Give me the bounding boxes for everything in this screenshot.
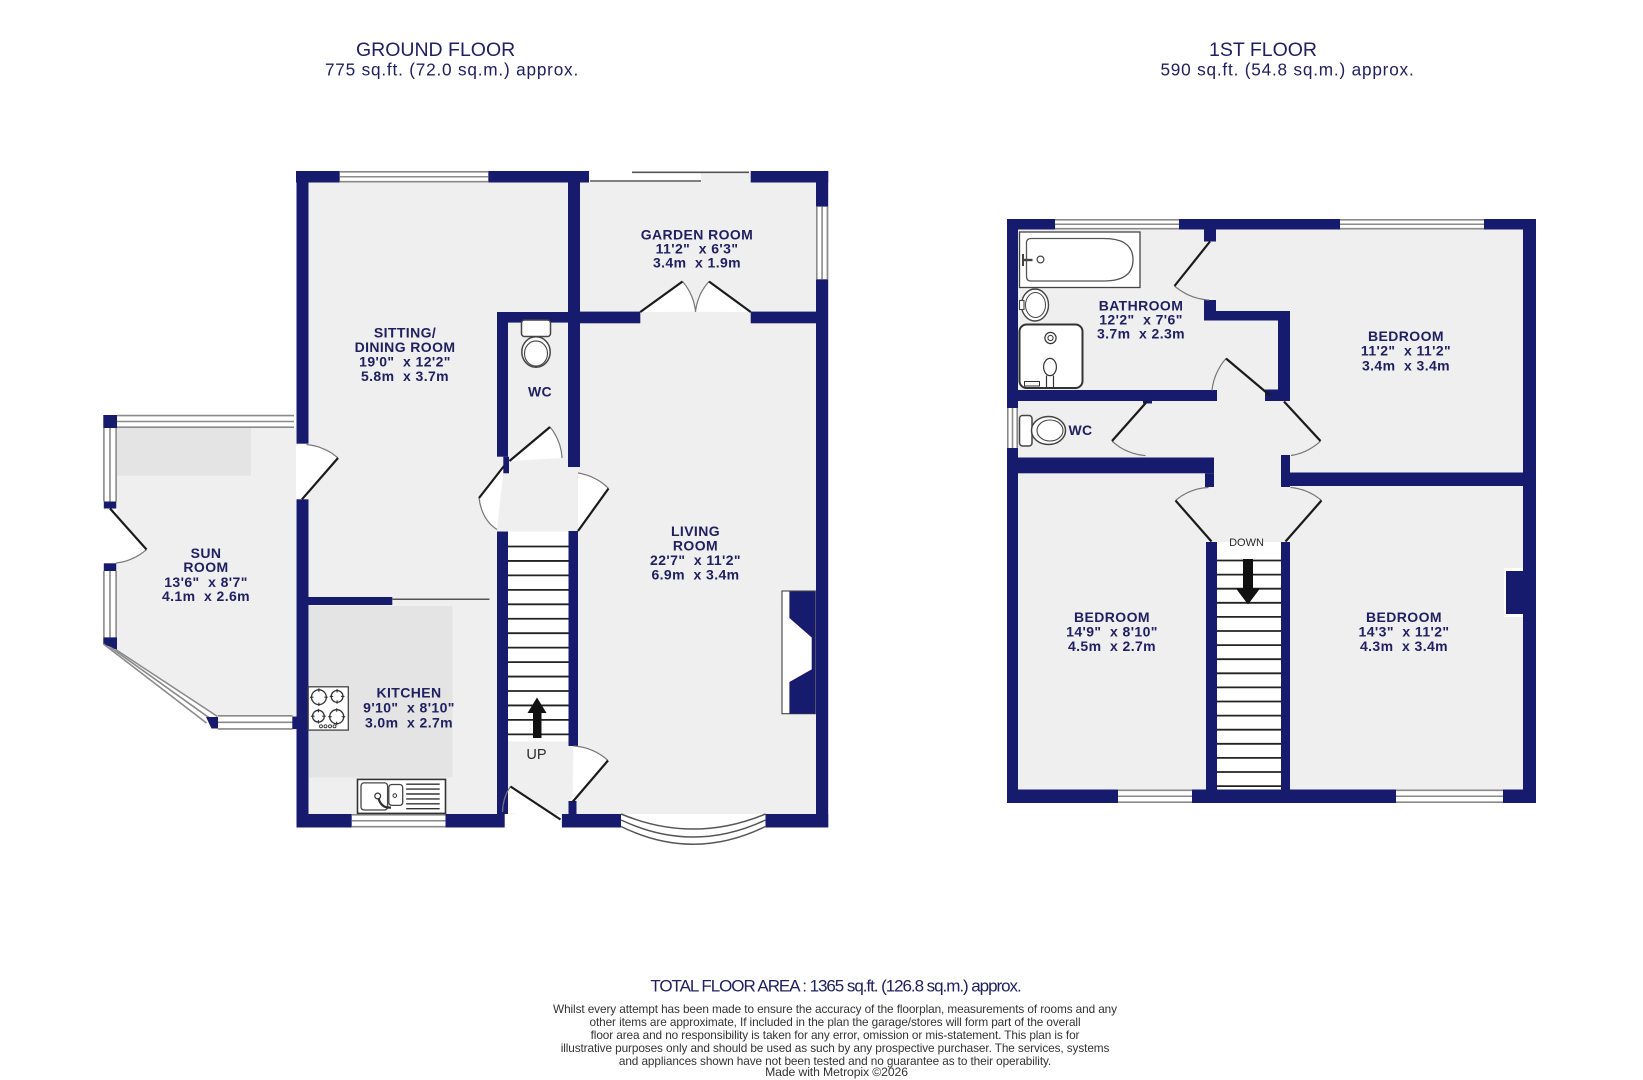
svg-text:KITCHEN: KITCHEN: [376, 685, 441, 701]
svg-text:WC: WC: [528, 384, 552, 400]
svg-text:DOWN: DOWN: [1229, 537, 1264, 549]
svg-text:775 sq.ft. (72.0 sq.m.) approx: 775 sq.ft. (72.0 sq.m.) approx.: [325, 60, 579, 80]
svg-text:9'10" x 8'10": 9'10" x 8'10": [363, 700, 455, 716]
svg-text:3.4m x 3.4m: 3.4m x 3.4m: [1362, 358, 1450, 374]
svg-text:Whilst every attempt has been: Whilst every attempt has been made to en…: [553, 1002, 1117, 1016]
svg-text:WC: WC: [1068, 422, 1092, 438]
svg-text:11'2" x 11'2": 11'2" x 11'2": [1361, 343, 1451, 359]
svg-text:4.5m x 2.7m: 4.5m x 2.7m: [1068, 638, 1156, 654]
svg-text:3.0m x 2.7m: 3.0m x 2.7m: [365, 715, 453, 731]
svg-text:UP: UP: [526, 747, 546, 763]
svg-text:other items are approximate, I: other items are approximate, If included…: [590, 1015, 1081, 1029]
svg-text:3.4m x 1.9m: 3.4m x 1.9m: [653, 255, 741, 271]
svg-text:Made with Metropix ©2026: Made with Metropix ©2026: [765, 1065, 908, 1079]
svg-text:TOTAL FLOOR AREA : 1365 sq.ft.: TOTAL FLOOR AREA : 1365 sq.ft. (126.8 sq…: [650, 977, 1021, 996]
svg-text:3.7m x 2.3m: 3.7m x 2.3m: [1097, 326, 1185, 342]
svg-text:4.3m x 3.4m: 4.3m x 3.4m: [1360, 638, 1448, 654]
svg-text:floor area and no responsibili: floor area and no responsibility is take…: [591, 1028, 1080, 1042]
svg-text:illustrative purposes only and: illustrative purposes only and should be…: [561, 1041, 1110, 1055]
svg-text:590 sq.ft. (54.8 sq.m.) approx: 590 sq.ft. (54.8 sq.m.) approx.: [1160, 60, 1414, 80]
svg-text:5.8m x 3.7m: 5.8m x 3.7m: [361, 368, 449, 384]
svg-text:ROOM: ROOM: [183, 559, 228, 575]
svg-text:GROUND FLOOR: GROUND FLOOR: [356, 39, 515, 61]
svg-text:6.9m x 3.4m: 6.9m x 3.4m: [651, 566, 739, 582]
svg-text:4.1m x 2.6m: 4.1m x 2.6m: [162, 588, 250, 604]
svg-text:1ST FLOOR: 1ST FLOOR: [1209, 39, 1317, 61]
